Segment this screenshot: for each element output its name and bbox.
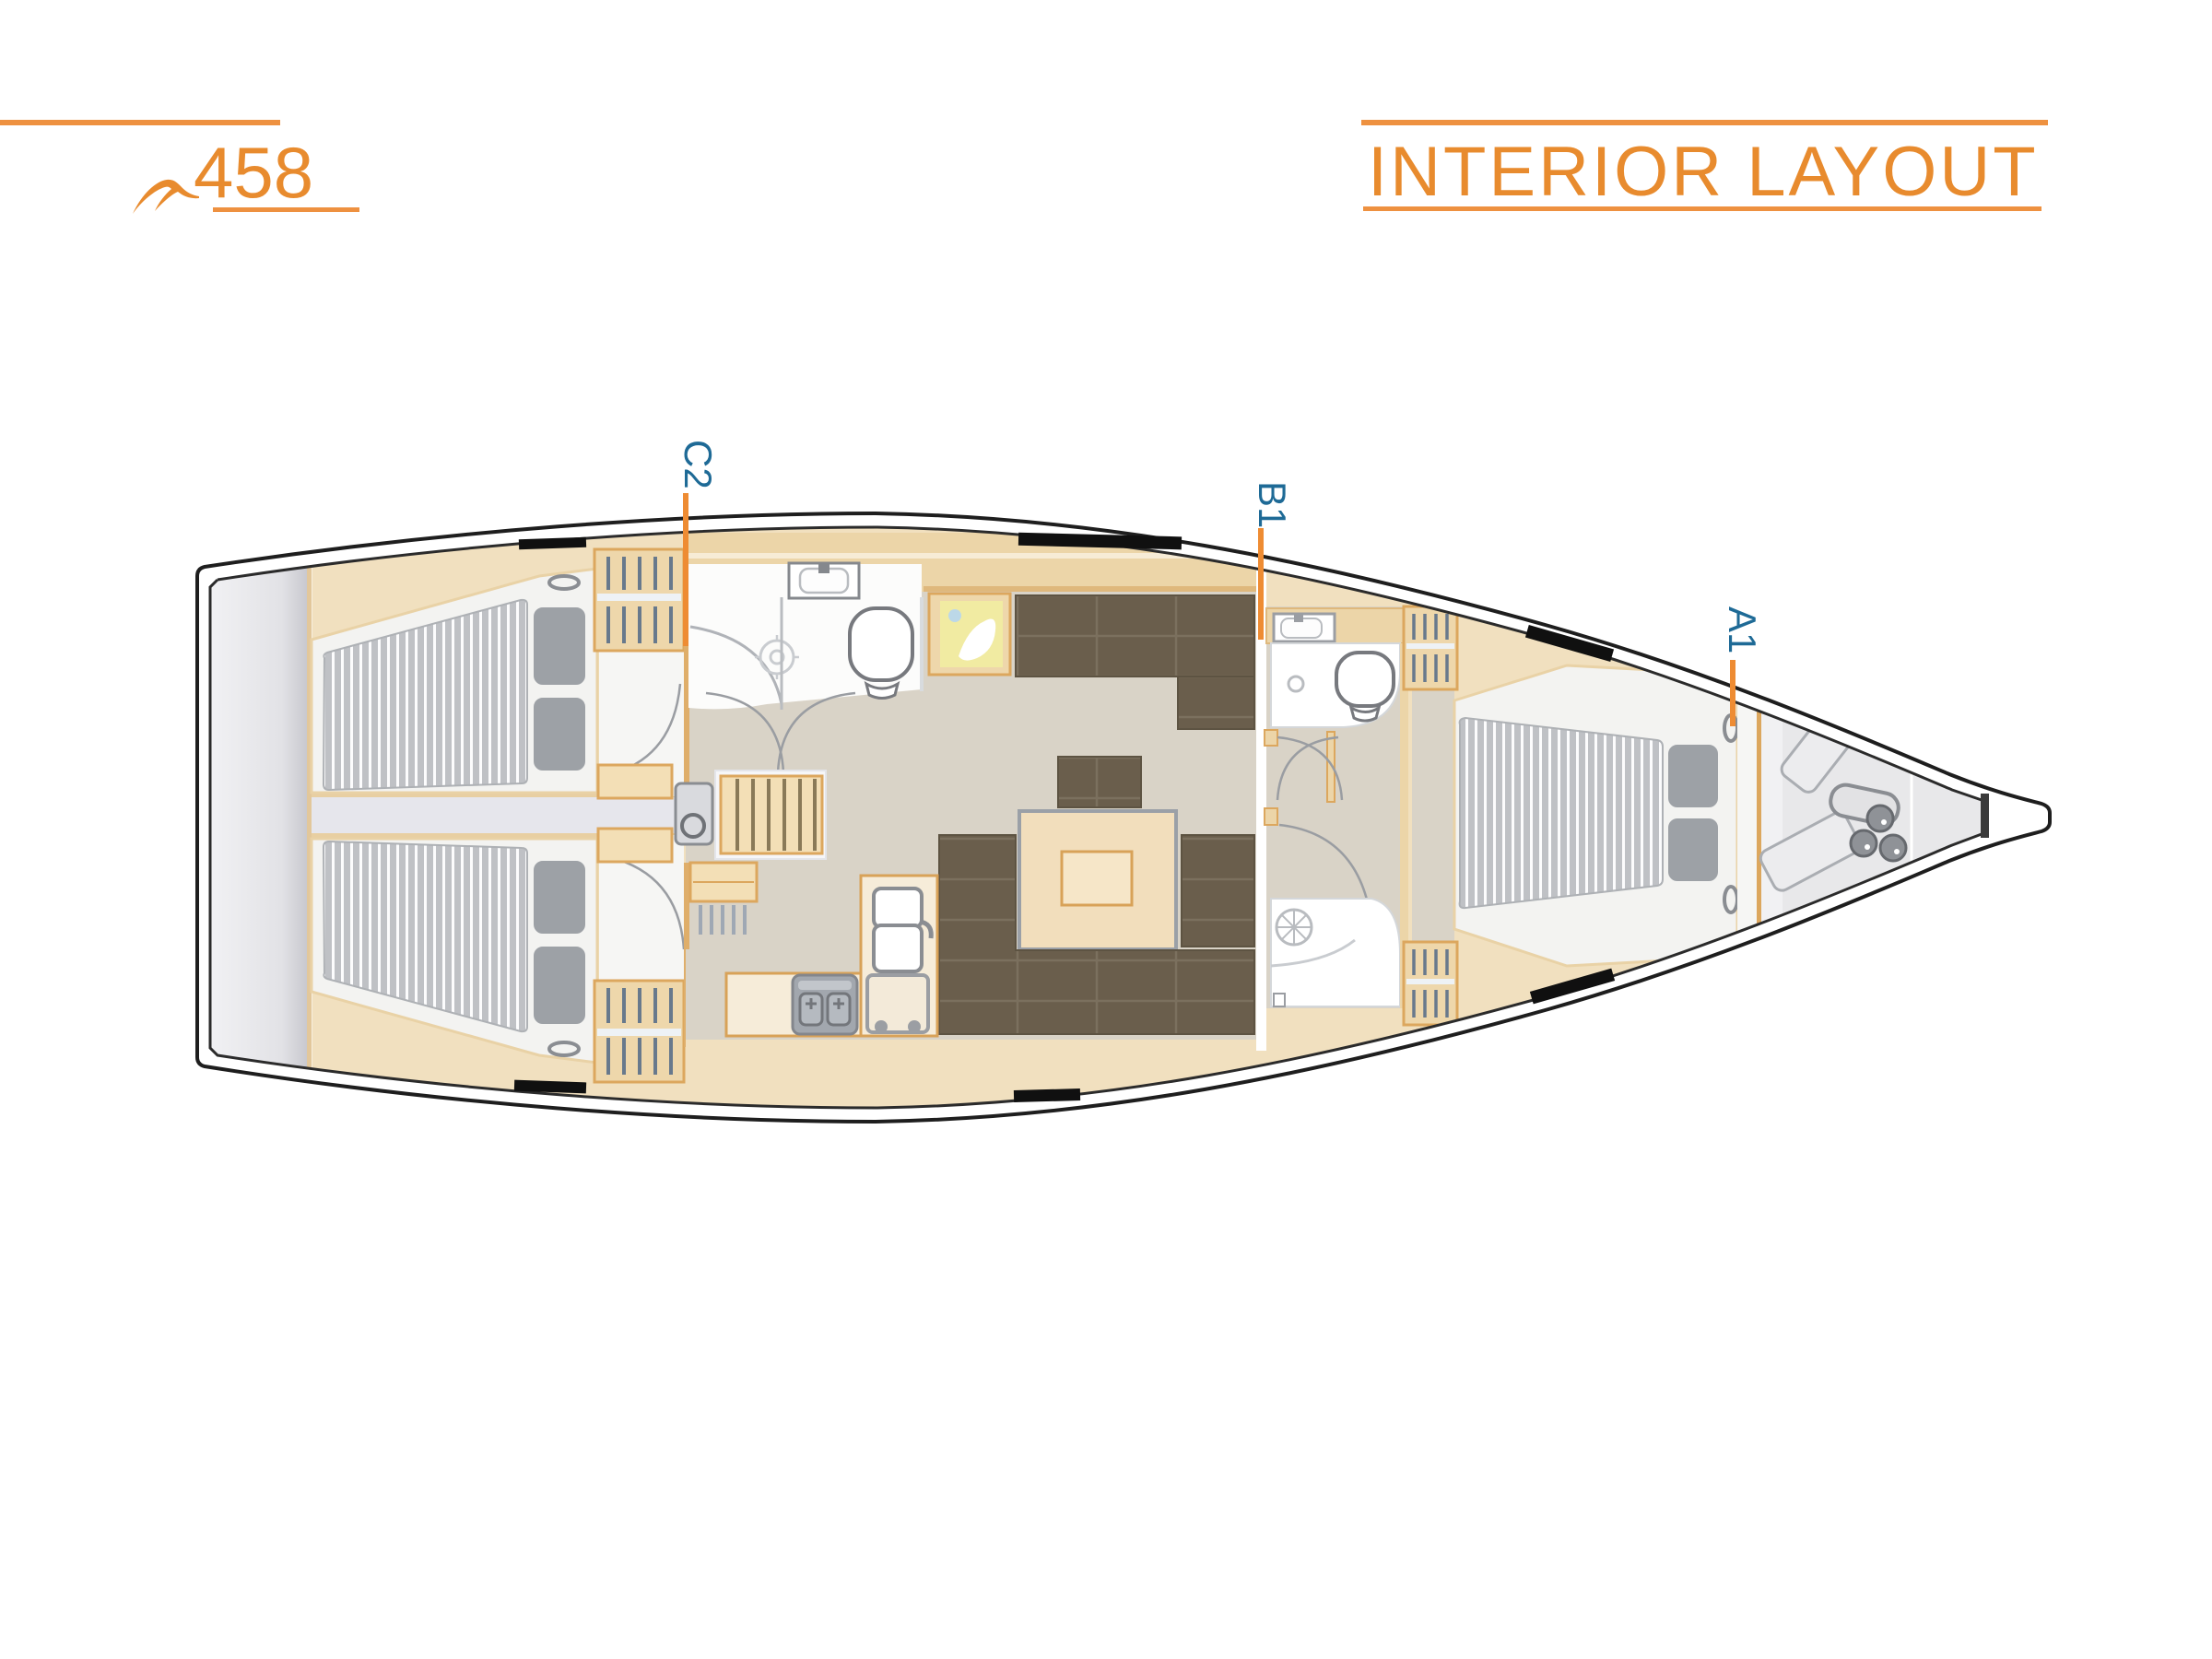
svg-text:C2: C2 [677, 440, 720, 489]
svg-text:B1: B1 [1251, 481, 1294, 528]
svg-text:A1: A1 [1721, 606, 1764, 653]
svg-text:458: 458 [194, 132, 313, 213]
svg-text:INTERIOR LAYOUT: INTERIOR LAYOUT [1368, 133, 2039, 211]
